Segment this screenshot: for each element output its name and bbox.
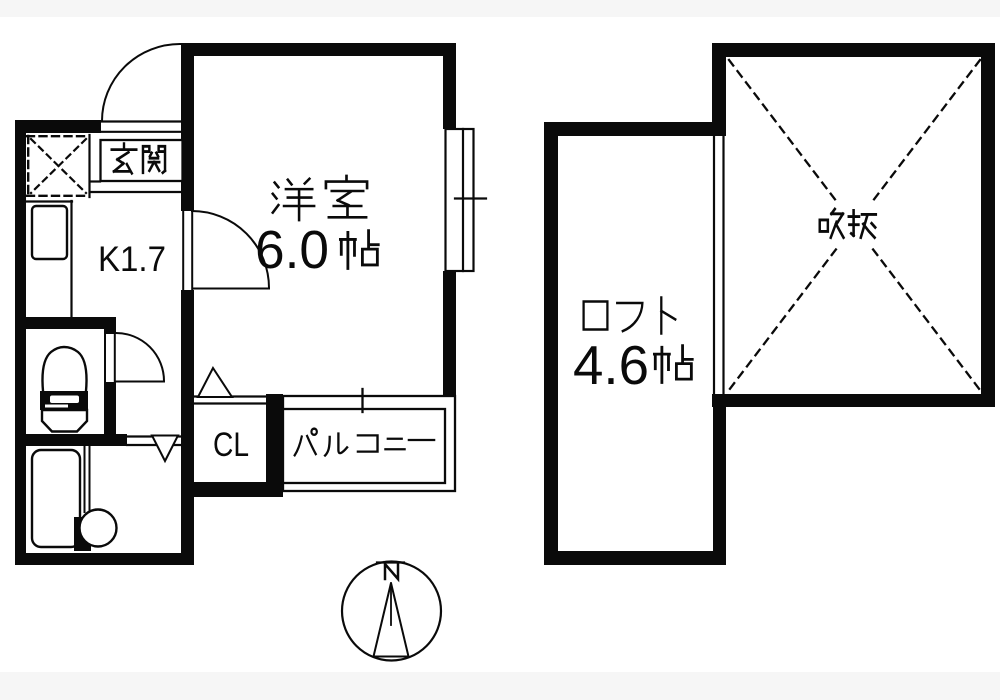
svg-text:4.6: 4.6 [573, 334, 649, 396]
svg-text:CL: CL [213, 426, 249, 464]
svg-text:6.0: 6.0 [255, 220, 329, 280]
svg-text:K1.7: K1.7 [98, 240, 166, 279]
